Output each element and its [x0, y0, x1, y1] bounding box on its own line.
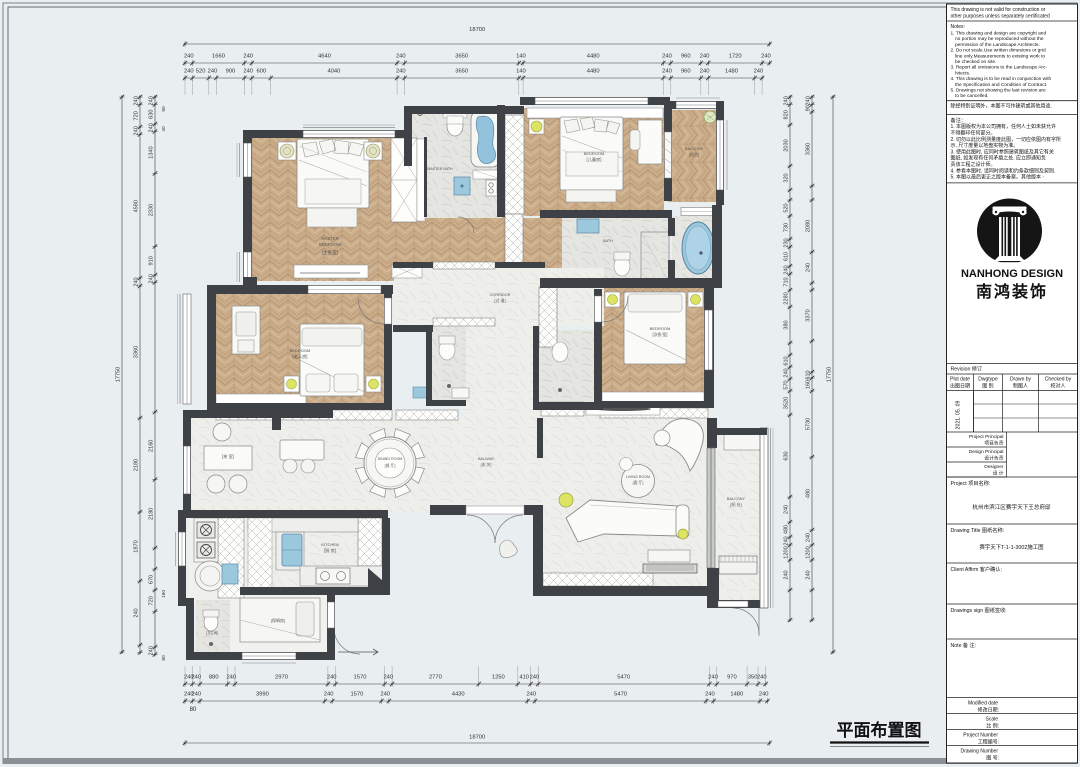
- svg-text:1. 本图版权为本公司拥有，任何人士如未获允许: 1. 本图版权为本公司拥有，任何人士如未获允许: [951, 123, 1057, 130]
- svg-text:to be cancelled.: to be cancelled.: [955, 93, 989, 99]
- svg-text:3360: 3360: [134, 346, 140, 358]
- svg-text:1660: 1660: [212, 54, 225, 60]
- svg-text:图纸, 如发现有任何矛盾之处, 应立即通知负: 图纸, 如发现有任何矛盾之处, 应立即通知负: [951, 155, 1047, 162]
- svg-text:3650: 3650: [455, 69, 468, 75]
- svg-text:240: 240: [383, 675, 393, 681]
- svg-text:520: 520: [196, 69, 206, 75]
- svg-text:图 别: 图 别: [982, 383, 993, 390]
- svg-text:230: 230: [784, 238, 790, 247]
- svg-text:1570: 1570: [350, 692, 363, 698]
- svg-text:1200: 1200: [806, 546, 812, 558]
- svg-text:18700: 18700: [469, 27, 485, 33]
- svg-text:other purposes unless separate: other purposes unless separately certifi…: [951, 14, 1050, 20]
- svg-text:BALCONY: BALCONY: [685, 147, 704, 151]
- svg-text:2160: 2160: [149, 440, 155, 452]
- svg-text:630: 630: [149, 110, 155, 119]
- svg-text:3. 使用此图时, 应同时参照建筑图纸及其它有关: 3. 使用此图时, 应同时参照建筑图纸及其它有关: [951, 148, 1054, 155]
- svg-text:赛宇天下T-1-1-3002施工图: 赛宇天下T-1-1-3002施工图: [979, 543, 1043, 551]
- svg-text:4430: 4430: [452, 692, 465, 698]
- svg-text:820: 820: [784, 110, 790, 119]
- svg-text:970: 970: [727, 675, 737, 681]
- svg-text:杭州市滨江区赛宇天下王总府邸: 杭州市滨江区赛宇天下王总府邸: [972, 503, 1051, 511]
- svg-text:This drawing is not valid for: This drawing is not valid for constructi…: [951, 7, 1046, 13]
- svg-text:备注：: 备注：: [951, 116, 967, 124]
- svg-text:Revision 修订: Revision 修订: [951, 365, 983, 373]
- svg-text:160: 160: [806, 380, 812, 389]
- svg-text:5. 本图以最后更正之版本备案。其他版本 ·: 5. 本图以最后更正之版本备案。其他版本 ·: [951, 174, 1045, 181]
- svg-text:Drawing Title 图纸名称:: Drawing Title 图纸名称:: [951, 526, 1005, 534]
- svg-text:[次卧室]: [次卧室]: [653, 331, 668, 338]
- svg-text:BEDROOM: BEDROOM: [584, 151, 605, 156]
- svg-text:1870: 1870: [134, 540, 140, 552]
- svg-text:3360: 3360: [806, 143, 812, 155]
- svg-text:1340: 1340: [149, 146, 155, 158]
- svg-text:320: 320: [784, 173, 790, 182]
- svg-text:140: 140: [516, 54, 526, 60]
- svg-text:17750: 17750: [827, 367, 833, 383]
- svg-text:[阳台]: [阳台]: [689, 151, 699, 157]
- svg-text:5. Drawings not showing the la: 5. Drawings not showing the last revisio…: [951, 88, 1047, 94]
- svg-text:240: 240: [226, 675, 236, 681]
- svg-text:240: 240: [784, 570, 790, 579]
- svg-text:Scale: Scale: [985, 717, 998, 723]
- svg-text:240: 240: [324, 692, 334, 698]
- svg-text:240: 240: [184, 69, 194, 75]
- svg-text:240: 240: [243, 69, 253, 75]
- svg-text:2180: 2180: [134, 459, 140, 471]
- svg-text:比 例:: 比 例:: [986, 723, 999, 730]
- svg-text:4480: 4480: [587, 54, 600, 60]
- svg-text:修改日期:: 修改日期:: [978, 707, 999, 714]
- svg-text:240: 240: [149, 96, 155, 105]
- svg-text:工程编号:: 工程编号:: [978, 739, 999, 746]
- svg-text:4040: 4040: [327, 69, 340, 75]
- svg-text:4580: 4580: [134, 200, 140, 212]
- svg-text:240: 240: [191, 675, 201, 681]
- svg-text:610: 610: [806, 370, 812, 379]
- svg-text:240: 240: [784, 505, 790, 514]
- svg-text:240: 240: [705, 692, 715, 698]
- svg-text:240: 240: [530, 675, 540, 681]
- svg-text:720: 720: [134, 111, 140, 120]
- svg-text:5470: 5470: [617, 675, 630, 681]
- svg-text:2. Do not scale.Use written di: 2. Do not scale.Use written dimesions or…: [951, 48, 1047, 54]
- svg-text:示, 尺寸度量以地盘实物为准。: 示, 尺寸度量以地盘实物为准。: [951, 142, 1019, 149]
- svg-text:900: 900: [226, 69, 236, 75]
- svg-text:Drawings sign 图纸签收:: Drawings sign 图纸签收:: [951, 606, 1007, 614]
- svg-text:2280: 2280: [784, 292, 790, 304]
- svg-text:5730: 5730: [806, 418, 812, 430]
- svg-text:Note 备 注:: Note 备 注:: [951, 641, 977, 649]
- svg-text:[茶 室]: [茶 室]: [222, 453, 234, 459]
- svg-text:Project Number: Project Number: [963, 733, 998, 739]
- svg-text:Drawn by: Drawn by: [1010, 377, 1032, 383]
- svg-text:240: 240: [191, 692, 201, 698]
- svg-text:LIVING ROOM: LIVING ROOM: [626, 475, 650, 479]
- svg-text:600: 600: [256, 69, 266, 75]
- svg-text:3370: 3370: [806, 309, 812, 321]
- svg-text:Project 项目名称:: Project 项目名称:: [951, 479, 991, 487]
- svg-text:17750: 17750: [116, 367, 122, 383]
- svg-text:240: 240: [327, 675, 337, 681]
- svg-text:MASTER BATH: MASTER BATH: [427, 167, 453, 171]
- svg-text:1720: 1720: [729, 54, 742, 60]
- svg-text:240: 240: [806, 570, 812, 579]
- svg-text:Notes:: Notes:: [951, 24, 965, 30]
- svg-text:制图人: 制图人: [1013, 383, 1028, 390]
- svg-text:4. 参看本图时, 请同时阅读和约条款细则及契则.: 4. 参看本图时, 请同时阅读和约条款细则及契则.: [951, 167, 1056, 174]
- svg-text:2021. 05. 09: 2021. 05. 09: [956, 400, 962, 429]
- svg-text:4. This drawing is to be read: 4. This drawing is to be read in conjunc…: [951, 76, 1052, 82]
- svg-text:90: 90: [806, 105, 812, 111]
- svg-text:240: 240: [757, 675, 767, 681]
- svg-text:CORRIDOR: CORRIDOR: [490, 293, 511, 297]
- svg-text:line only.Measurements to exis: line only.Measurements to existing work …: [955, 53, 1045, 59]
- svg-text:Drawing Number: Drawing Number: [960, 749, 998, 755]
- svg-text:Checked by: Checked by: [1045, 377, 1072, 383]
- svg-text:380: 380: [784, 320, 790, 329]
- svg-text:240: 240: [700, 54, 710, 60]
- svg-text:3520: 3520: [784, 397, 790, 409]
- svg-text:[过 道]: [过 道]: [494, 297, 505, 303]
- svg-text:[老人房]: [老人房]: [293, 353, 308, 360]
- svg-text:1480: 1480: [725, 69, 738, 75]
- svg-text:240: 240: [396, 69, 406, 75]
- svg-text:2030: 2030: [784, 139, 790, 151]
- svg-text:240: 240: [759, 692, 769, 698]
- svg-text:Design Principal: Design Principal: [969, 449, 1004, 455]
- svg-text:Designer: Designer: [984, 464, 1004, 470]
- svg-text:240: 240: [149, 646, 155, 655]
- svg-text:1250: 1250: [492, 675, 505, 681]
- svg-text:[餐 厅]: [餐 厅]: [385, 463, 396, 468]
- svg-text:2770: 2770: [429, 675, 442, 681]
- svg-text:1. This drawing and design are: 1. This drawing and design are copyright…: [951, 31, 1047, 37]
- svg-text:5470: 5470: [614, 692, 627, 698]
- svg-text:[儿童房]: [儿童房]: [587, 156, 602, 163]
- svg-text:be checked on site.: be checked on site.: [955, 59, 996, 65]
- svg-text:710: 710: [784, 277, 790, 286]
- svg-text:960: 960: [681, 69, 691, 75]
- svg-text:1480: 1480: [730, 692, 743, 698]
- svg-text:平面布置图: 平面布置图: [837, 720, 922, 740]
- svg-text:BEDROOM: BEDROOM: [650, 326, 671, 331]
- svg-text:责该工程之设计师。: 责该工程之设计师。: [951, 161, 996, 168]
- svg-text:DINING ROOM: DINING ROOM: [378, 457, 403, 461]
- svg-text:240: 240: [134, 96, 140, 105]
- svg-text:the Specification and Conditio: the Specification and Condition of Contr…: [955, 82, 1047, 88]
- svg-text:240: 240: [662, 54, 672, 60]
- svg-text:2970: 2970: [275, 675, 288, 681]
- svg-text:730: 730: [784, 223, 790, 232]
- svg-text:Dwgtype: Dwgtype: [978, 377, 998, 383]
- svg-text:除经特别证明外，本图不可作建筑或其他用途.: 除经特别证明外，本图不可作建筑或其他用途.: [951, 102, 1052, 109]
- svg-text:240: 240: [784, 368, 790, 377]
- svg-text:240: 240: [806, 533, 812, 542]
- svg-text:no portion may be reproduced w: no portion may be reproduced without the: [955, 36, 1044, 42]
- svg-text:240: 240: [380, 692, 390, 698]
- svg-text:2080: 2080: [806, 220, 812, 232]
- svg-text:4480: 4480: [587, 69, 600, 75]
- svg-text:不得翻印任何部分。: 不得翻印任何部分。: [951, 130, 996, 137]
- svg-text:[玄 关]: [玄 关]: [481, 462, 492, 467]
- svg-text:[厨 房]: [厨 房]: [324, 547, 336, 554]
- svg-text:设 计: 设 计: [993, 469, 1004, 476]
- svg-text:240: 240: [806, 263, 812, 272]
- svg-text:240: 240: [784, 96, 790, 105]
- svg-text:项目负责: 项目负责: [984, 439, 1003, 446]
- svg-text:Project Principal: Project Principal: [969, 434, 1004, 440]
- svg-text:910: 910: [149, 256, 155, 265]
- svg-text:BALCONY: BALCONY: [727, 497, 746, 501]
- svg-text:520: 520: [784, 203, 790, 212]
- svg-text:BEDROOM: BEDROOM: [319, 242, 341, 247]
- svg-text:KITCHEN: KITCHEN: [321, 542, 339, 547]
- svg-text:3650: 3650: [455, 54, 468, 60]
- svg-text:校对人: 校对人: [1050, 383, 1065, 390]
- svg-text:Modified date: Modified date: [968, 701, 998, 707]
- svg-text:Client Affirm 客户确认:: Client Affirm 客户确认:: [951, 565, 1003, 573]
- svg-text:240: 240: [784, 536, 790, 545]
- svg-text:4640: 4640: [318, 54, 331, 60]
- svg-text:3990: 3990: [256, 692, 269, 698]
- svg-text:240: 240: [700, 69, 710, 75]
- svg-text:[保姆房]: [保姆房]: [271, 617, 285, 623]
- svg-text:240: 240: [806, 96, 812, 105]
- svg-text:80: 80: [190, 707, 197, 713]
- svg-text:240: 240: [208, 69, 218, 75]
- svg-text:90: 90: [161, 106, 167, 112]
- svg-text:permission of the Landscape Ar: permission of the Landscape Architects.: [955, 42, 1040, 48]
- svg-text:240: 240: [754, 69, 764, 75]
- svg-text:240: 240: [761, 54, 771, 60]
- svg-text:MASTER: MASTER: [321, 236, 338, 241]
- svg-text:[阳 台]: [阳 台]: [730, 501, 741, 507]
- svg-text:240: 240: [134, 277, 140, 286]
- svg-text:410: 410: [519, 675, 529, 681]
- svg-text:3. Report all omissions to the: 3. Report all omissions to the Landscape…: [951, 65, 1048, 71]
- svg-text:[主卧室]: [主卧室]: [322, 249, 338, 256]
- svg-text:hitects.: hitects.: [955, 70, 970, 76]
- svg-text:南鸿装饰: 南鸿装饰: [976, 282, 1048, 301]
- svg-text:570: 570: [784, 380, 790, 389]
- svg-text:[卫生间]: [卫生间]: [206, 630, 218, 635]
- svg-text:1570: 1570: [354, 675, 367, 681]
- svg-text:240: 240: [149, 274, 155, 283]
- svg-text:1200: 1200: [784, 546, 790, 558]
- svg-text:240: 240: [134, 608, 140, 617]
- svg-text:630: 630: [784, 451, 790, 460]
- svg-text:610: 610: [784, 252, 790, 261]
- svg-text:图 号:: 图 号:: [986, 756, 999, 762]
- svg-text:NANHONG DESIGN: NANHONG DESIGN: [961, 268, 1063, 280]
- svg-text:2180: 2180: [149, 508, 155, 520]
- svg-text:40: 40: [161, 126, 167, 132]
- svg-text:720: 720: [149, 596, 155, 605]
- svg-text:610: 610: [784, 356, 790, 365]
- svg-text:480: 480: [784, 525, 790, 534]
- svg-text:2. 切勿以此比例测量度此图，一切应依图内有字所: 2. 切勿以此比例测量度此图，一切应依图内有字所: [951, 136, 1062, 143]
- svg-text:240: 240: [396, 54, 406, 60]
- svg-text:240: 240: [184, 54, 194, 60]
- svg-text:[客 厅]: [客 厅]: [633, 480, 644, 485]
- svg-text:880: 880: [209, 675, 219, 681]
- svg-text:设计负责: 设计负责: [984, 454, 1003, 461]
- svg-text:2330: 2330: [149, 204, 155, 216]
- svg-text:240: 240: [708, 675, 718, 681]
- svg-text:240: 240: [149, 123, 155, 132]
- svg-text:140: 140: [516, 69, 526, 75]
- svg-text:18700: 18700: [469, 735, 485, 741]
- svg-text:240: 240: [134, 126, 140, 135]
- svg-text:240: 240: [526, 692, 536, 698]
- svg-text:240: 240: [784, 265, 790, 274]
- svg-text:HALLWAY: HALLWAY: [478, 457, 495, 461]
- svg-text:BEDROOM: BEDROOM: [290, 348, 311, 353]
- svg-text:190: 190: [161, 590, 167, 598]
- svg-text:80: 80: [161, 655, 167, 661]
- svg-text:BATH: BATH: [603, 239, 613, 243]
- svg-text:Plot date: Plot date: [950, 377, 970, 383]
- svg-text:480: 480: [806, 489, 812, 498]
- svg-text:240: 240: [243, 54, 253, 60]
- svg-text:670: 670: [149, 575, 155, 584]
- svg-text:240: 240: [662, 69, 672, 75]
- svg-text:960: 960: [681, 54, 691, 60]
- svg-text:出图日期: 出图日期: [950, 383, 970, 390]
